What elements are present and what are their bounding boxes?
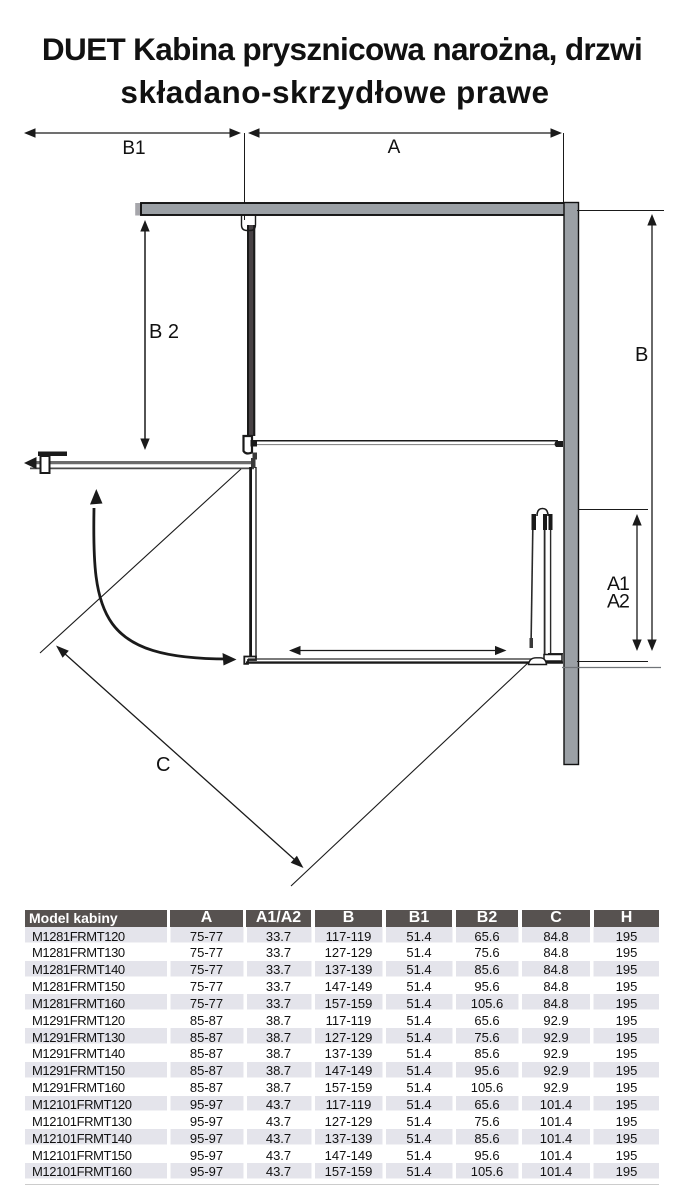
svg-text:A: A	[388, 137, 401, 158]
svg-text:C: C	[156, 754, 170, 776]
svg-text:B 2: B 2	[149, 321, 179, 343]
svg-text:B1: B1	[122, 138, 145, 159]
svg-text:B: B	[635, 344, 648, 366]
svg-text:A2: A2	[607, 591, 629, 613]
